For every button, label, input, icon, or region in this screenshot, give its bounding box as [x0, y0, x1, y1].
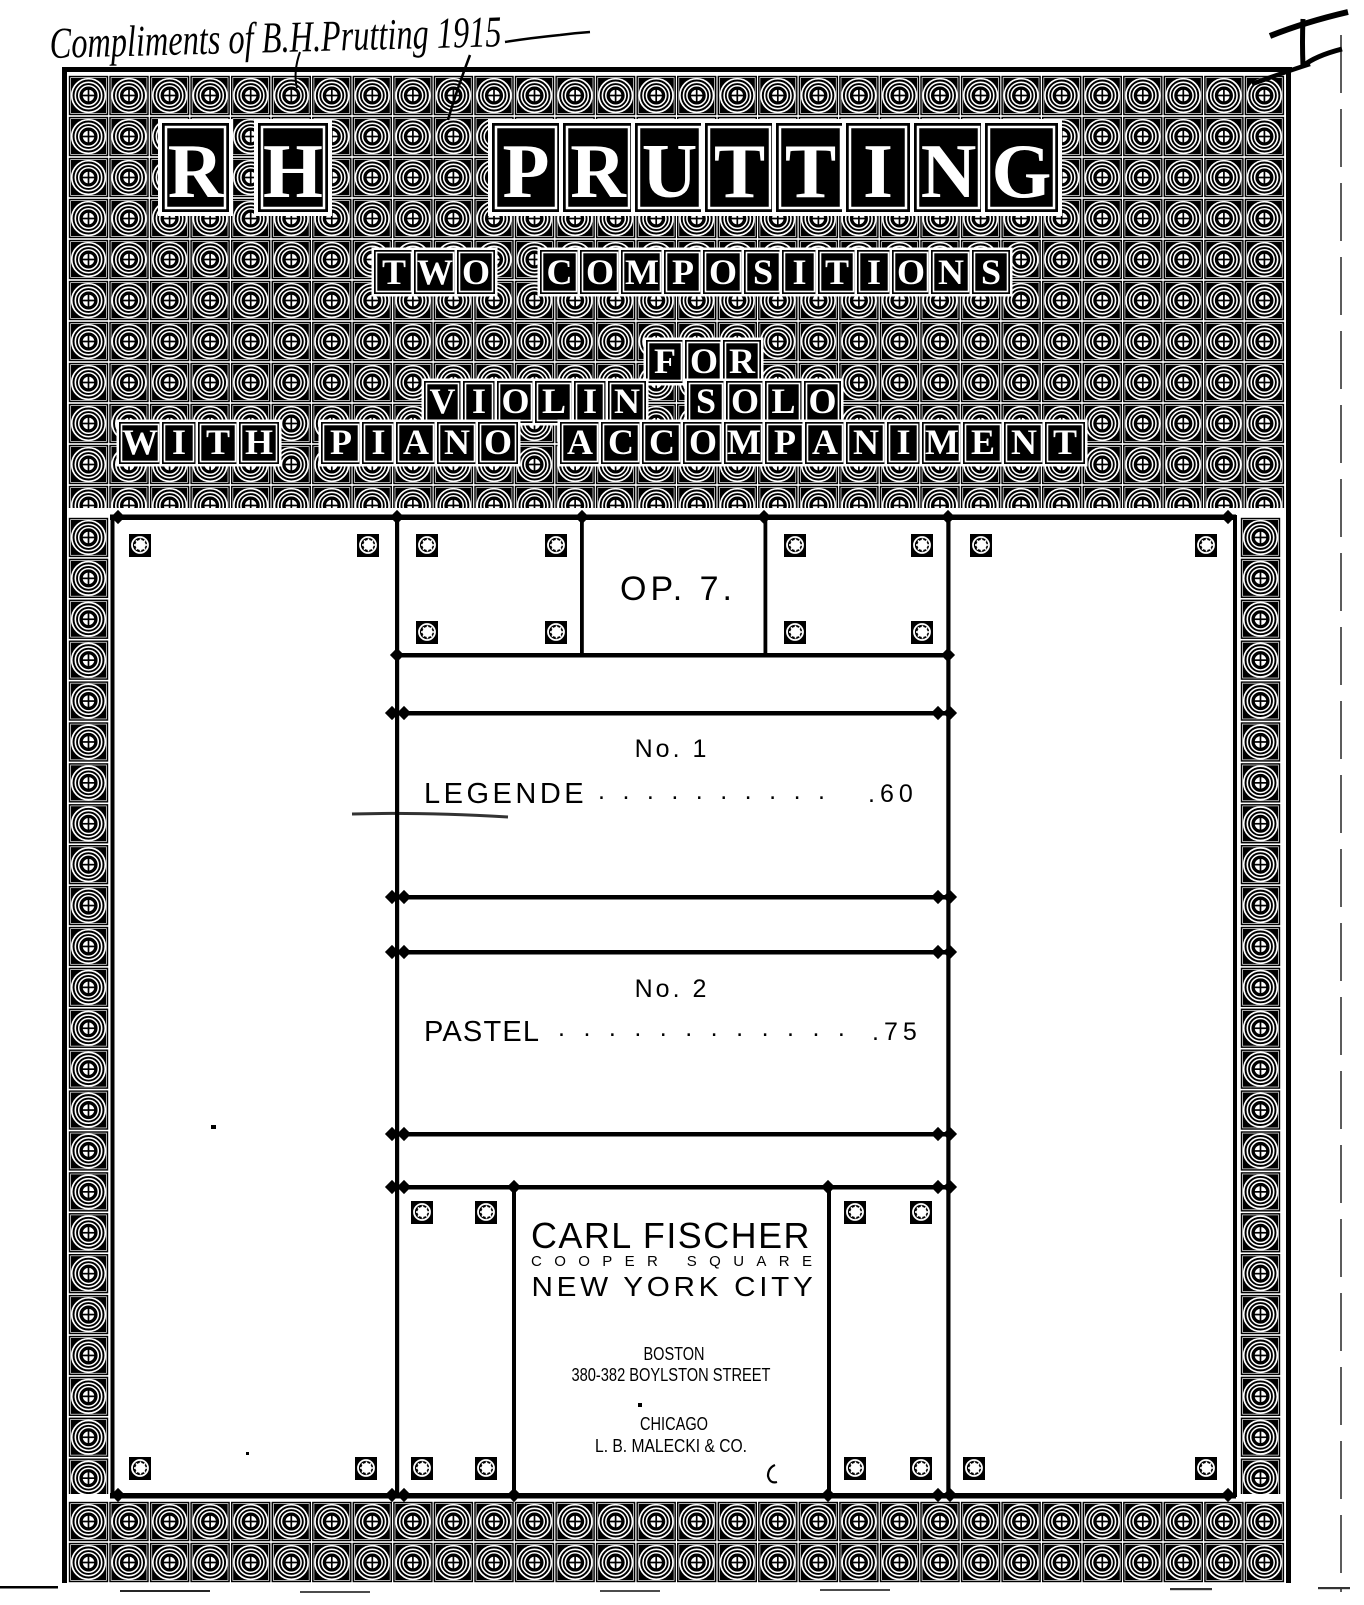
svg-text:.75: .75 — [872, 1018, 922, 1046]
svg-text:T: T — [382, 252, 406, 292]
svg-text:BOSTON: BOSTON — [644, 1344, 705, 1364]
svg-text:S: S — [696, 381, 716, 421]
svg-text:G: G — [992, 128, 1052, 214]
svg-text:W: W — [122, 422, 158, 462]
svg-text:I: I — [472, 381, 486, 421]
svg-text:A: A — [403, 422, 429, 462]
svg-text:L: L — [771, 381, 795, 421]
svg-text:T: T — [714, 128, 765, 214]
svg-text:F: F — [654, 341, 676, 381]
svg-text:N: N — [853, 422, 879, 462]
svg-text:O: O — [690, 341, 718, 381]
svg-text:OP. 7.: OP. 7. — [620, 570, 736, 608]
svg-text:I: I — [583, 381, 597, 421]
svg-text:W: W — [417, 252, 453, 292]
svg-text:P: P — [672, 252, 694, 292]
svg-text:E: E — [971, 422, 995, 462]
svg-text:I: I — [172, 422, 186, 462]
svg-text:LEGENDE: LEGENDE — [424, 778, 587, 810]
svg-text:M: M — [727, 422, 761, 462]
svg-text:N: N — [444, 422, 470, 462]
svg-text:H: H — [263, 128, 323, 214]
svg-text:..........: .......... — [598, 777, 842, 805]
svg-text:R: R — [168, 128, 225, 214]
svg-text:O: O — [897, 252, 925, 292]
svg-text:O: O — [462, 252, 490, 292]
svg-text:No. 2: No. 2 — [635, 975, 710, 1003]
svg-text:U: U — [642, 128, 698, 214]
svg-text:O: O — [501, 381, 529, 421]
svg-text:M: M — [625, 252, 659, 292]
svg-text:R: R — [570, 128, 627, 214]
svg-text:I: I — [863, 128, 893, 214]
svg-text:O: O — [484, 422, 512, 462]
svg-text:C: C — [547, 252, 573, 292]
svg-text:L: L — [542, 381, 566, 421]
svg-text:I: I — [371, 422, 385, 462]
svg-text:............: ............ — [558, 1014, 863, 1042]
svg-text:H: H — [245, 422, 273, 462]
svg-text:N: N — [1011, 422, 1037, 462]
svg-text:S: S — [753, 252, 773, 292]
svg-text:S: S — [981, 252, 1001, 292]
svg-text:T: T — [825, 252, 849, 292]
svg-text:PASTEL: PASTEL — [424, 1016, 540, 1048]
svg-text:P: P — [774, 422, 796, 462]
svg-text:P: P — [502, 128, 549, 214]
svg-text:I: I — [792, 252, 806, 292]
svg-text:A: A — [812, 422, 838, 462]
svg-text:N: N — [921, 128, 977, 214]
svg-text:A: A — [567, 422, 593, 462]
svg-text:M: M — [925, 422, 959, 462]
svg-text:O: O — [808, 381, 836, 421]
svg-text:NEW YORK CITY: NEW YORK CITY — [532, 1271, 817, 1302]
svg-text:.60: .60 — [868, 780, 918, 808]
svg-text:T: T — [206, 422, 230, 462]
svg-text:V: V — [430, 381, 456, 421]
svg-text:R: R — [729, 341, 756, 381]
svg-text:N: N — [938, 252, 964, 292]
svg-text:N: N — [614, 381, 640, 421]
svg-text:O: O — [731, 381, 759, 421]
svg-text:C: C — [649, 422, 675, 462]
svg-text:L. B. MALECKI & CO.: L. B. MALECKI & CO. — [595, 1436, 747, 1456]
svg-text:I: I — [867, 252, 881, 292]
svg-text:C: C — [608, 422, 634, 462]
svg-text:T: T — [1053, 422, 1077, 462]
svg-text:CARL FISCHER: CARL FISCHER — [531, 1215, 811, 1256]
svg-text:CHICAGO: CHICAGO — [640, 1414, 708, 1434]
svg-text:O: O — [709, 252, 737, 292]
svg-text:I: I — [896, 422, 910, 462]
svg-text:T: T — [785, 128, 836, 214]
svg-text:O: O — [586, 252, 614, 292]
svg-text:380-382 BOYLSTON STREET: 380-382 BOYLSTON STREET — [572, 1365, 771, 1385]
svg-text:P: P — [330, 422, 352, 462]
svg-text:O: O — [689, 422, 717, 462]
svg-text:No. 1: No. 1 — [635, 735, 710, 763]
